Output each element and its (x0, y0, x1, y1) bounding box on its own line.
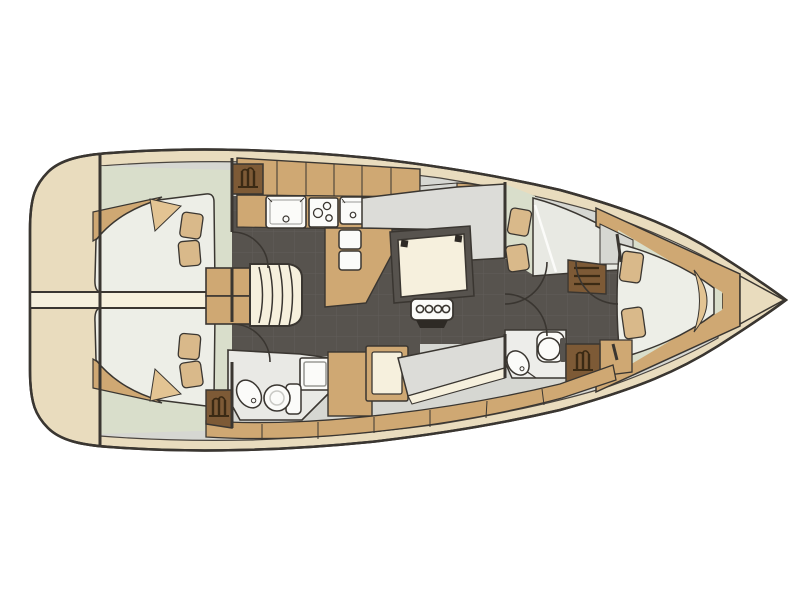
pillow (507, 207, 532, 236)
stove (309, 198, 338, 227)
stair-steps (250, 264, 302, 326)
bottle-holder-icon (434, 305, 441, 312)
fridge-box (339, 230, 361, 249)
galley-sink-left (266, 196, 306, 228)
pillow (621, 307, 646, 340)
pillow (178, 240, 201, 267)
companionway-stairs (206, 264, 302, 326)
pillow (179, 361, 203, 389)
stair-block (206, 268, 250, 296)
pillow (179, 212, 203, 240)
toilet (264, 384, 301, 414)
forward-head (502, 330, 566, 379)
aft-berth-starboard (93, 307, 215, 406)
pillow (505, 244, 529, 273)
burner-icon (326, 215, 332, 221)
table-top (398, 234, 467, 297)
stair-block (206, 296, 250, 324)
boat-floorplan-page (0, 0, 800, 601)
drawer-unit (568, 260, 606, 294)
boat-floorplan (0, 0, 800, 601)
pillow (619, 251, 644, 284)
hanging-locker-galley (232, 164, 263, 194)
burner-icon (314, 209, 323, 218)
pillow (178, 333, 201, 360)
aft-berth-port (93, 194, 215, 293)
fridge-box (339, 251, 361, 270)
bottle-holder-icon (416, 305, 423, 312)
bottle-holder-base (416, 320, 448, 328)
table-corner-fitting (400, 240, 408, 248)
toilet (537, 332, 566, 362)
hanging-locker-aft (206, 390, 232, 428)
table-corner-fitting (454, 235, 462, 243)
bottle-holder-icon (425, 305, 432, 312)
bottle-holder-icon (442, 305, 449, 312)
shower-pan (300, 358, 330, 390)
burner-icon (323, 202, 330, 209)
